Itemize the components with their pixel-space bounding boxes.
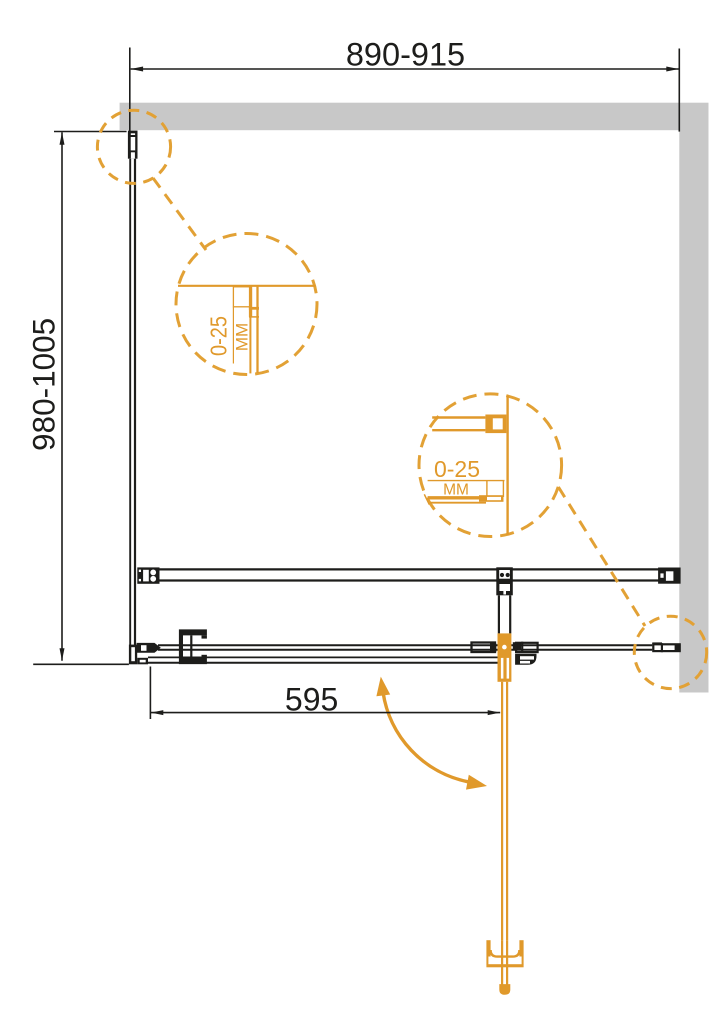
svg-text:595: 595 <box>285 682 338 718</box>
svg-text:MM: MM <box>233 323 252 351</box>
svg-text:980-1005: 980-1005 <box>26 318 62 451</box>
svg-text:0-25: 0-25 <box>206 316 232 356</box>
svg-text:0-25: 0-25 <box>434 456 480 482</box>
svg-text:MM: MM <box>443 482 469 499</box>
svg-text:890-915: 890-915 <box>346 37 465 73</box>
